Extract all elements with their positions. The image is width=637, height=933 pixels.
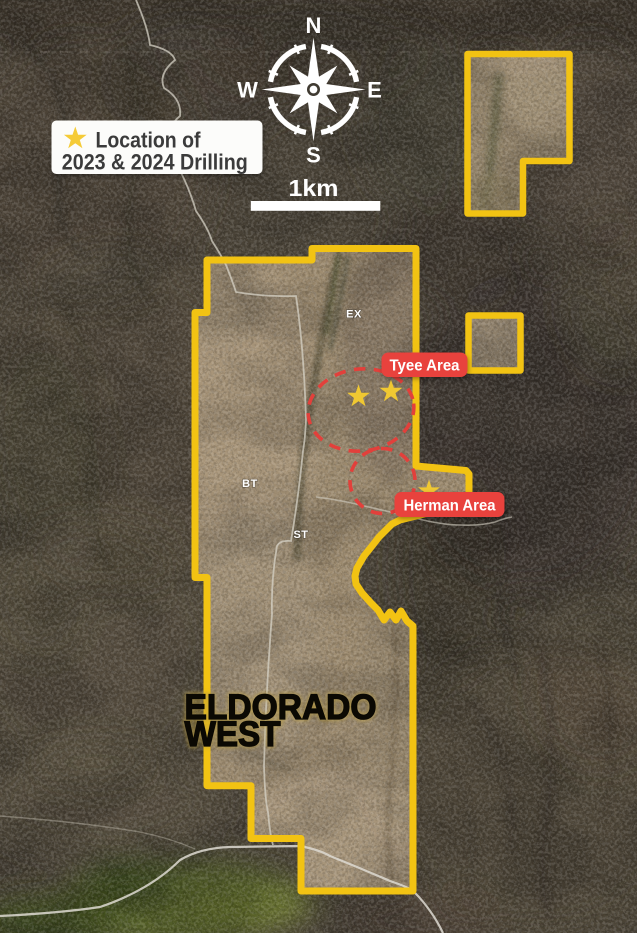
svg-text:WEST: WEST [185,715,281,754]
svg-text:S: S [306,143,321,168]
svg-text:EX: EX [346,309,362,321]
svg-text:Tyee Area: Tyee Area [390,357,460,374]
svg-text:W: W [237,78,258,103]
svg-text:N: N [306,13,322,38]
svg-text:2023 & 2024 Drilling: 2023 & 2024 Drilling [62,149,248,174]
svg-text:BT: BT [242,478,258,490]
svg-text:Herman Area: Herman Area [404,497,496,514]
svg-text:1km: 1km [289,175,339,201]
svg-text:ST: ST [293,529,308,541]
svg-text:E: E [367,78,382,103]
